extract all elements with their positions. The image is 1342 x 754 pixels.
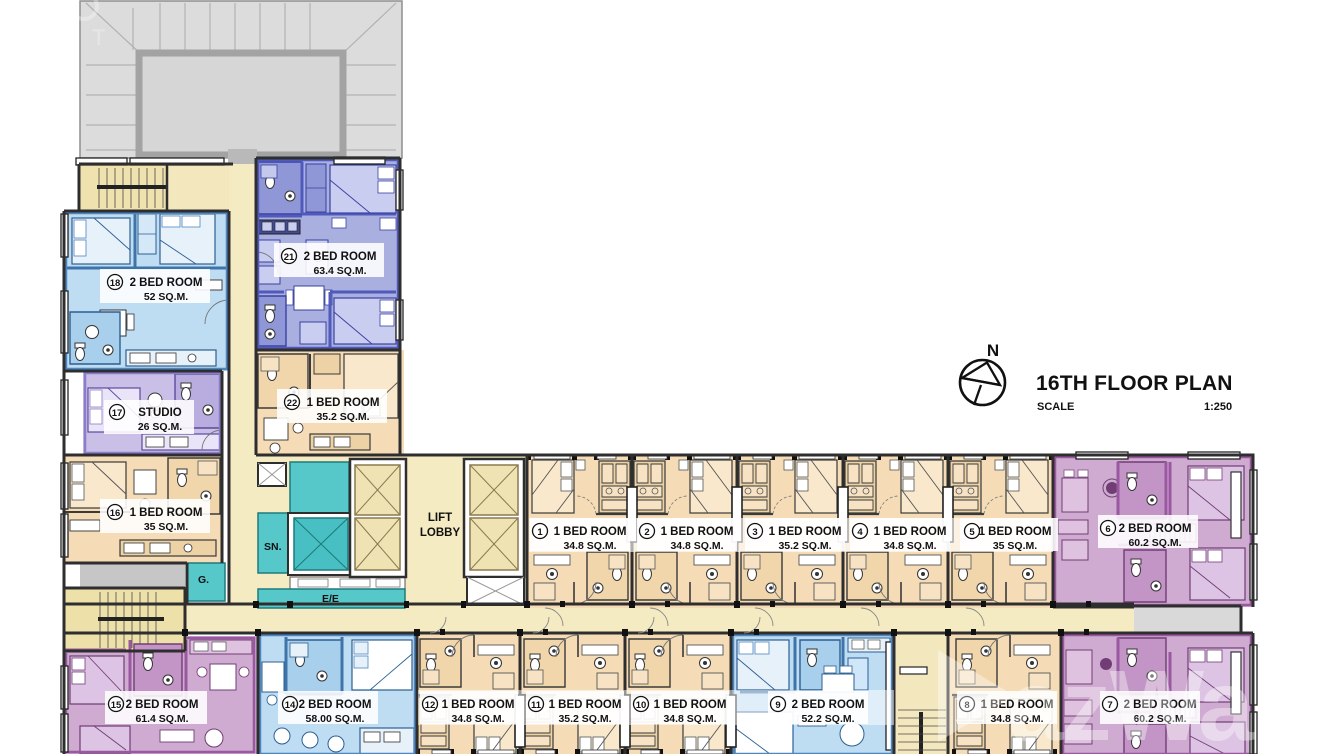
svg-text:1:250: 1:250 bbox=[1204, 401, 1232, 413]
svg-text:1 BED ROOM: 1 BED ROOM bbox=[307, 397, 380, 409]
svg-text:61.4 SQ.M.: 61.4 SQ.M. bbox=[135, 713, 188, 725]
svg-text:35.2 SQ.M.: 35.2 SQ.M. bbox=[316, 411, 369, 423]
svg-text:14: 14 bbox=[285, 700, 296, 711]
svg-text:26 SQ.M.: 26 SQ.M. bbox=[138, 421, 182, 433]
svg-text:SN.: SN. bbox=[264, 541, 282, 553]
svg-text:35 SQ.M.: 35 SQ.M. bbox=[144, 521, 188, 533]
svg-text:5: 5 bbox=[969, 527, 975, 538]
svg-text:1 BED ROOM: 1 BED ROOM bbox=[554, 526, 627, 538]
svg-text:2: 2 bbox=[644, 527, 649, 538]
svg-text:21: 21 bbox=[284, 252, 295, 263]
svg-text:52.2 SQ.M.: 52.2 SQ.M. bbox=[801, 713, 854, 725]
svg-text:LOBBY: LOBBY bbox=[420, 527, 461, 539]
svg-text:35.2 SQ.M.: 35.2 SQ.M. bbox=[778, 540, 831, 552]
svg-text:1: 1 bbox=[537, 527, 543, 538]
svg-text:35.2 SQ.M.: 35.2 SQ.M. bbox=[558, 713, 611, 725]
svg-text:63.4 SQ.M.: 63.4 SQ.M. bbox=[313, 265, 366, 277]
svg-text:1 BED ROOM: 1 BED ROOM bbox=[661, 526, 734, 538]
svg-text:T: T bbox=[92, 25, 105, 50]
svg-text:G.: G. bbox=[198, 574, 209, 586]
svg-text:1 BED ROOM: 1 BED ROOM bbox=[979, 526, 1052, 538]
svg-text:60.2 SQ.M.: 60.2 SQ.M. bbox=[1128, 537, 1181, 549]
svg-text:2 BED ROOM: 2 BED ROOM bbox=[304, 251, 377, 263]
svg-text:LIFT: LIFT bbox=[428, 512, 452, 524]
svg-text:34.8 SQ.M.: 34.8 SQ.M. bbox=[451, 713, 504, 725]
svg-text:1 BED ROOM: 1 BED ROOM bbox=[874, 526, 947, 538]
svg-text:22: 22 bbox=[287, 398, 298, 409]
svg-text:1 BED ROOM: 1 BED ROOM bbox=[654, 699, 727, 711]
svg-text:16TH FLOOR PLAN: 16TH FLOOR PLAN bbox=[1036, 372, 1233, 395]
svg-text:34.8 SQ.M.: 34.8 SQ.M. bbox=[883, 540, 936, 552]
svg-text:6: 6 bbox=[1105, 524, 1110, 535]
svg-text:11: 11 bbox=[531, 700, 542, 711]
svg-text:15: 15 bbox=[111, 700, 122, 711]
svg-text:azWa: azWa bbox=[1008, 650, 1255, 754]
svg-text:9: 9 bbox=[775, 700, 780, 711]
svg-text:34.8 SQ.M.: 34.8 SQ.M. bbox=[670, 540, 723, 552]
svg-text:2 BED ROOM: 2 BED ROOM bbox=[126, 699, 199, 711]
svg-text:12: 12 bbox=[425, 700, 436, 711]
svg-text:17: 17 bbox=[112, 408, 123, 419]
svg-text:2 BED ROOM: 2 BED ROOM bbox=[1119, 523, 1192, 535]
svg-text:SCALE: SCALE bbox=[1037, 401, 1074, 413]
svg-text:STUDIO: STUDIO bbox=[138, 407, 182, 419]
svg-text:18: 18 bbox=[110, 278, 121, 289]
svg-text:1 BED ROOM: 1 BED ROOM bbox=[442, 699, 515, 711]
svg-text:35 SQ.M.: 35 SQ.M. bbox=[993, 540, 1037, 552]
svg-text:34.8 SQ.M.: 34.8 SQ.M. bbox=[563, 540, 616, 552]
svg-text:E/E: E/E bbox=[322, 593, 339, 605]
svg-text:1 BED ROOM: 1 BED ROOM bbox=[549, 699, 622, 711]
svg-text:4: 4 bbox=[857, 527, 863, 538]
svg-text:2 BED ROOM: 2 BED ROOM bbox=[299, 699, 372, 711]
svg-text:N: N bbox=[987, 341, 999, 360]
svg-text:1 BED ROOM: 1 BED ROOM bbox=[769, 526, 842, 538]
svg-text:34.8 SQ.M.: 34.8 SQ.M. bbox=[663, 713, 716, 725]
svg-text:2 BED ROOM: 2 BED ROOM bbox=[792, 699, 865, 711]
svg-text:16: 16 bbox=[110, 508, 121, 519]
svg-text:52 SQ.M.: 52 SQ.M. bbox=[144, 291, 188, 303]
svg-text:1 BED ROOM: 1 BED ROOM bbox=[130, 507, 203, 519]
svg-text:2 BED ROOM: 2 BED ROOM bbox=[130, 277, 203, 289]
svg-text:58.00 SQ.M.: 58.00 SQ.M. bbox=[306, 713, 365, 725]
svg-text:10: 10 bbox=[636, 700, 647, 711]
svg-text:3: 3 bbox=[752, 527, 757, 538]
